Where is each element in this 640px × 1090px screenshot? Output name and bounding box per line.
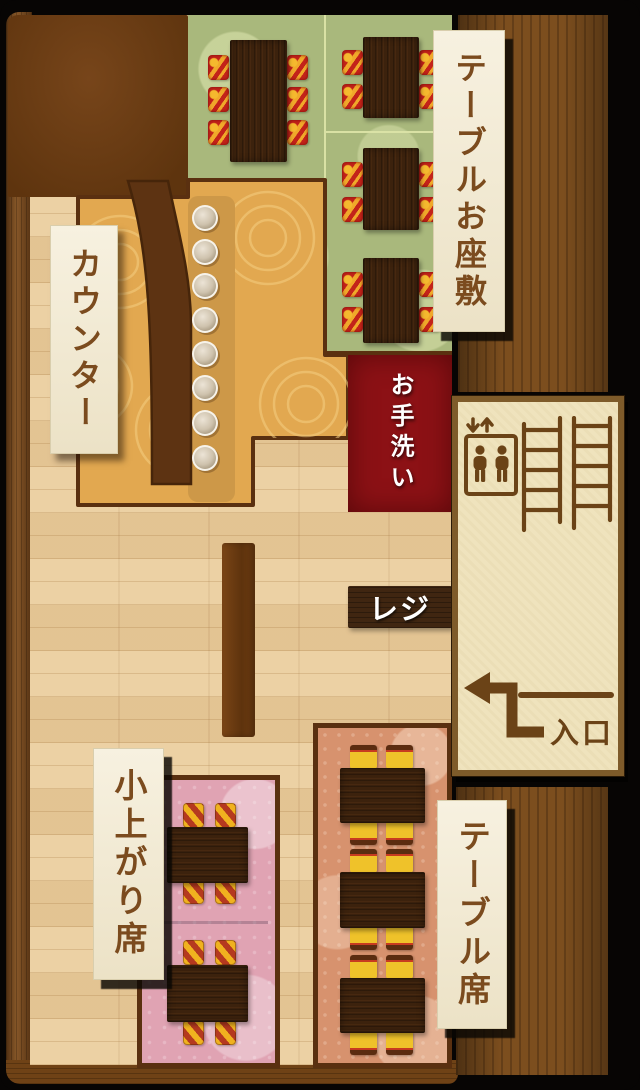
chair xyxy=(350,1031,377,1055)
elevator-people xyxy=(474,445,509,482)
chair xyxy=(386,821,413,845)
counter-label-card: カウンター xyxy=(50,225,118,454)
zabuton-cushion xyxy=(342,50,363,75)
zabuton-cushion xyxy=(287,87,308,112)
dining-table xyxy=(340,768,425,823)
stairs-icon xyxy=(520,416,614,534)
zabuton-cushion xyxy=(342,197,363,222)
chair xyxy=(386,926,413,950)
tatami-room-label: テーブルお座敷 xyxy=(453,51,485,311)
tatami-table xyxy=(363,37,419,118)
chair xyxy=(350,745,377,769)
chair xyxy=(386,955,413,979)
chair xyxy=(350,821,377,845)
entrance-hall: 入口 xyxy=(452,396,624,776)
tatami-room-label-card: テーブルお座敷 xyxy=(433,30,505,332)
zabuton-cushion xyxy=(287,55,308,80)
register-label: レジ xyxy=(369,586,431,628)
chair xyxy=(386,745,413,769)
zabuton-cushion xyxy=(342,272,363,297)
entrance-label: 入口 xyxy=(550,710,614,752)
zabuton-cushion xyxy=(208,55,229,80)
elevator-icon xyxy=(464,416,520,502)
tatami-table xyxy=(363,258,419,343)
table-seats-label-card: テーブル席 xyxy=(437,800,507,1029)
table-seats-label: テーブル席 xyxy=(456,819,489,1010)
counter-label: カウンター xyxy=(68,247,100,433)
entrance-door-line xyxy=(518,692,614,698)
koagari-table xyxy=(167,965,248,1022)
zabuton-cushion xyxy=(342,307,363,332)
restroom-label: お手洗い xyxy=(388,372,412,495)
chair xyxy=(386,849,413,873)
restroom-area: お手洗い xyxy=(348,355,452,512)
zabuton-cushion xyxy=(342,162,363,187)
dining-table xyxy=(340,978,425,1033)
tatami-table xyxy=(363,148,419,230)
dining-table xyxy=(340,872,425,928)
koagari-divider xyxy=(152,921,268,924)
restaurant-floor-map: お手洗い レジ xyxy=(0,0,640,1090)
chair xyxy=(350,849,377,873)
striped-cushion xyxy=(215,1020,236,1045)
chair xyxy=(350,955,377,979)
pillar xyxy=(222,543,255,737)
koagari-table xyxy=(167,827,248,883)
striped-cushion xyxy=(215,940,236,965)
tatami-table xyxy=(230,40,287,162)
striped-cushion xyxy=(183,1020,204,1045)
register-counter: レジ xyxy=(348,586,452,628)
striped-cushion xyxy=(215,803,236,828)
zabuton-cushion xyxy=(342,84,363,109)
zabuton-cushion xyxy=(208,87,229,112)
striped-cushion xyxy=(183,803,204,828)
striped-cushion xyxy=(183,940,204,965)
entry-path-arrow xyxy=(460,664,548,744)
zabuton-cushion xyxy=(208,120,229,145)
zabuton-cushion xyxy=(287,120,308,145)
chair xyxy=(386,1031,413,1055)
koagari-label-card: 小上がり席 xyxy=(93,748,164,980)
koagari-label: 小上がり席 xyxy=(112,768,145,959)
chair xyxy=(350,926,377,950)
